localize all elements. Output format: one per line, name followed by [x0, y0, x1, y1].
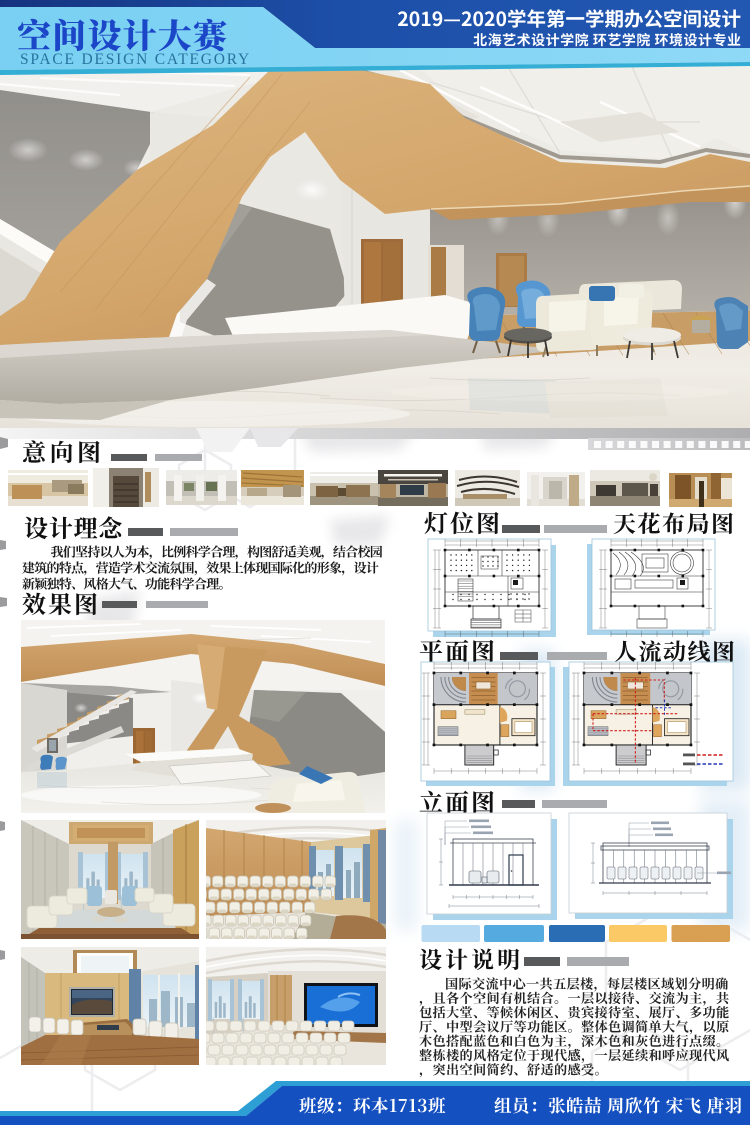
svg-text:SPACE DESIGN CATEGORY: SPACE DESIGN CATEGORY	[20, 51, 251, 68]
